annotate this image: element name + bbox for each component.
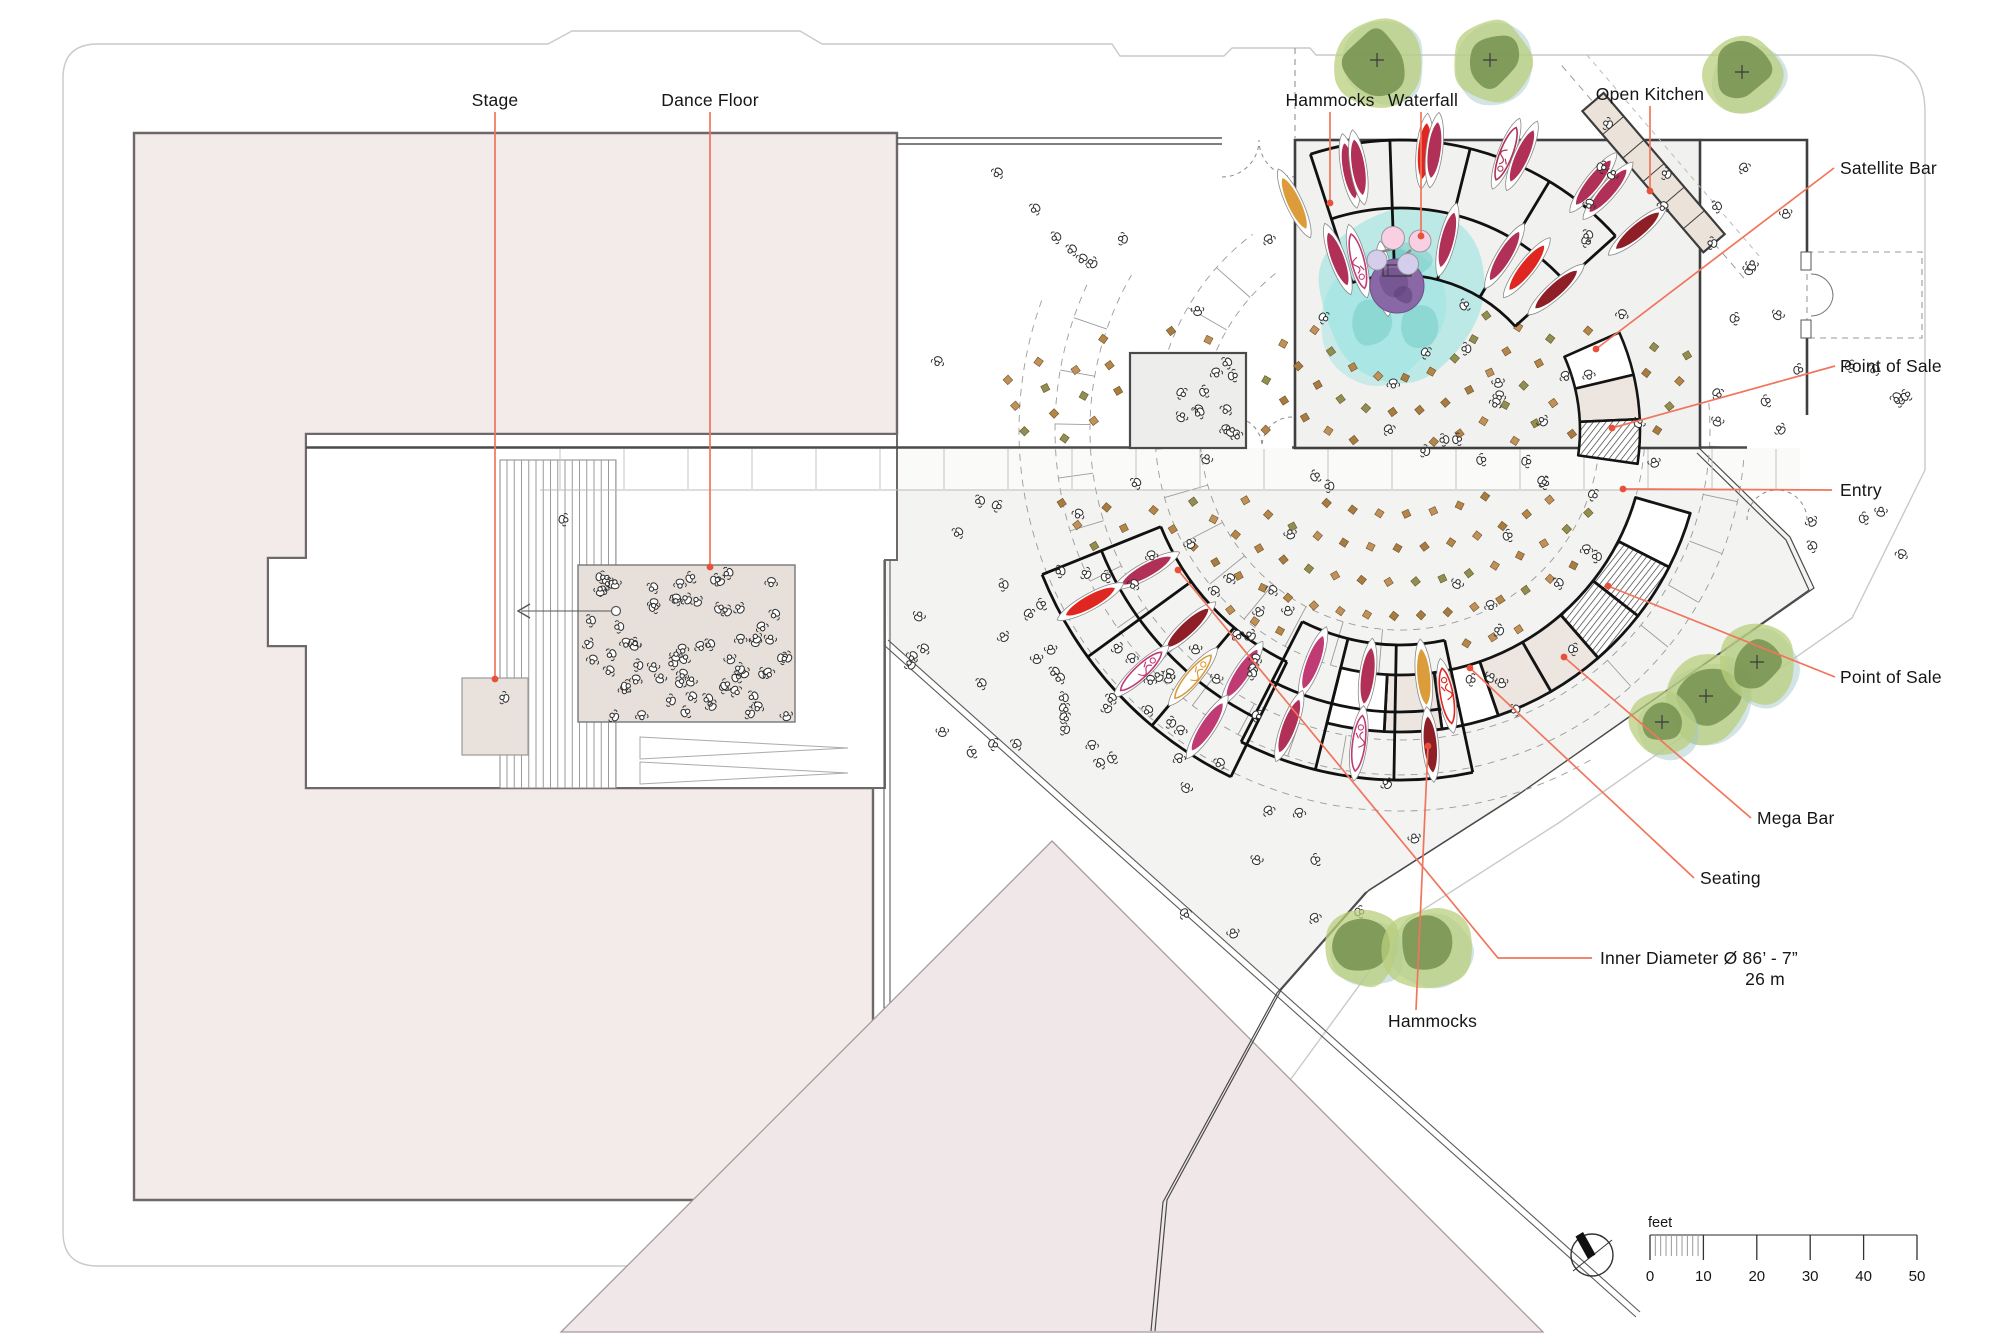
scale-bar-unit: feet <box>1648 1215 1672 1231</box>
label-seating: Seating <box>1700 868 1761 888</box>
scale-tick-label: 20 <box>1748 1268 1765 1285</box>
scale-tick-label: 40 <box>1855 1268 1872 1285</box>
scale-tick-label: 0 <box>1646 1268 1654 1285</box>
floor-plan-svg: Stage Dance Floor Hammocks Waterfall Ope… <box>0 0 2000 1333</box>
label-satellite-bar: Satellite Bar <box>1840 158 1937 178</box>
label-inner-diameter: Inner Diameter Ø 86’ - 7” <box>1600 948 1798 968</box>
label-point-of-sale-1: Point of Sale <box>1840 356 1942 376</box>
scale-tick-label: 10 <box>1695 1268 1712 1285</box>
label-point-of-sale-2: Point of Sale <box>1840 667 1942 687</box>
label-dance-floor: Dance Floor <box>661 90 759 110</box>
stage-area <box>462 678 528 755</box>
label-waterfall: Waterfall <box>1388 90 1458 110</box>
leader-entry <box>1623 489 1832 490</box>
floor-plan-page: Stage Dance Floor Hammocks Waterfall Ope… <box>0 0 2000 1333</box>
label-hammocks-top: Hammocks <box>1285 90 1374 110</box>
label-hammocks-bottom: Hammocks <box>1388 1011 1477 1031</box>
label-inner-diameter-metric: 26 m <box>1745 969 1785 989</box>
main-building <box>134 133 897 1200</box>
label-stage: Stage <box>472 90 519 110</box>
label-open-kitchen: Open Kitchen <box>1596 84 1704 104</box>
label-mega-bar: Mega Bar <box>1757 808 1834 828</box>
east-corridor <box>1700 140 1807 448</box>
scale-tick-label: 50 <box>1909 1268 1926 1285</box>
label-entry: Entry <box>1840 480 1882 500</box>
scale-tick-label: 30 <box>1802 1268 1819 1285</box>
